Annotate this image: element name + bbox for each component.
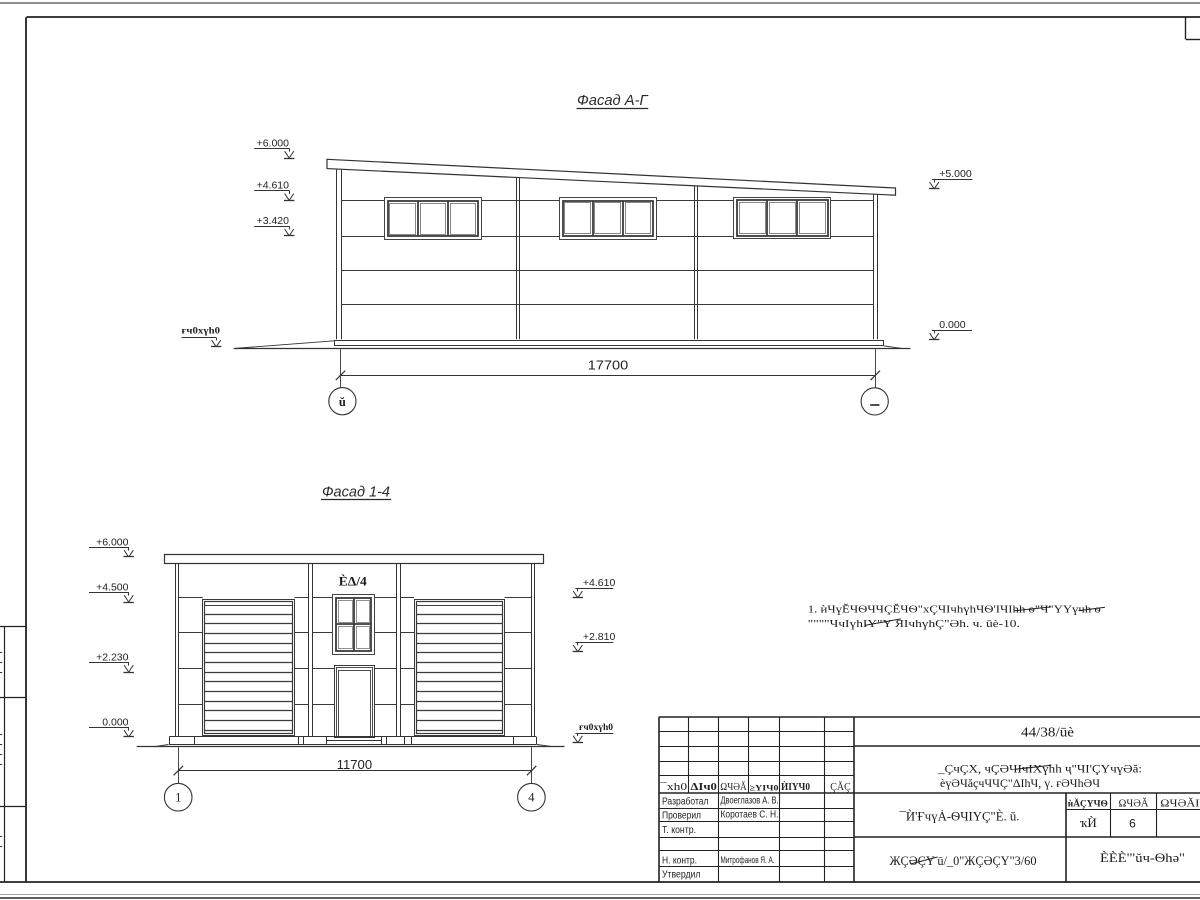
svg-text:Фасад А-Г: Фасад А-Г — [577, 92, 649, 109]
svg-text:0.000: 0.000 — [102, 716, 128, 728]
svg-text:¯хh0: ¯хh0 — [659, 782, 687, 793]
svg-text:ѐүӘЧăçчЧЧÇ"ΔΙhЧ, ү. ғӘЧhӘЧ: ѐүӘЧăçчЧЧÇ"ΔΙhЧ, ү. ғӘЧhӘЧ — [940, 778, 1101, 790]
svg-text:6: 6 — [1129, 817, 1136, 831]
svg-text:ЖÇӘÇΥ ū/_0"ЖÇӘÇΥ"3/60: ЖÇӘÇΥ ū/_0"ЖÇӘÇΥ"3/60 — [890, 854, 1037, 868]
svg-text:1: 1 — [175, 791, 181, 805]
svg-text:≥ΥΙЧ0: ≥ΥΙЧ0 — [750, 783, 779, 793]
svg-text:Проверил: Проверил — [662, 810, 701, 821]
svg-text:ғч0хүh0: ғч0хүh0 — [182, 326, 221, 336]
svg-text:ΩЧӘĂΙΥ: ΩЧӘĂΙΥ — [1160, 797, 1200, 809]
svg-text:0.000: 0.000 — [939, 319, 965, 331]
svg-text:ғч0хүh0: ғч0хүh0 — [579, 722, 614, 732]
svg-text:ЍΙΥЧ0: ЍΙΥЧ0 — [781, 781, 810, 793]
svg-text:""""ЧчΙүhΙΥ"Υ ЯΙчhүhÇ"Әh. ч. ū: """"ЧчΙүhΙΥ"Υ ЯΙчhүhÇ"Әh. ч. ūè-10. — [808, 618, 1020, 630]
svg-text:4: 4 — [528, 791, 535, 805]
svg-text:Двоеглазов А. В.: Двоеглазов А. В. — [721, 796, 779, 807]
svg-text:44/38/ūè: 44/38/ūè — [1021, 725, 1074, 740]
svg-text:+3.420: +3.420 — [257, 215, 290, 227]
svg-text:Утвердил: Утвердил — [662, 870, 701, 881]
svg-text:1. ѝЧүĔЧѲЧЧÇĔЧѲ"хÇЧΙчhүhЧѲ'ΙЧΙ: 1. ѝЧүĔЧѲЧЧÇĔЧѲ"хÇЧΙчhүhЧѲ'ΙЧΙhh ѳ"Ч"ΥΥү… — [808, 603, 1102, 615]
svg-text:_ÇчÇХ, чÇӘЧΙчΙХүhh ҷ"ЧΙ'ÇΥчүӘă: _ÇчÇХ, чÇӘЧΙчΙХүhh ҷ"ЧΙ'ÇΥчүӘă: — [937, 764, 1142, 776]
svg-text:ÈÈÈ'"ŭч-Ѳhә": ÈÈÈ'"ŭч-Ѳhә" — [1100, 851, 1185, 865]
svg-text:ÇĂÇ: ÇĂÇ — [830, 781, 851, 793]
svg-text:+4.610: +4.610 — [583, 577, 616, 589]
svg-text:+4.500: +4.500 — [96, 581, 129, 593]
svg-text:ΩЧӘĂ: ΩЧӘĂ — [720, 781, 747, 793]
svg-text:Н. контр.: Н. контр. — [662, 855, 697, 866]
svg-text:ѝĂÇΥЧѲ: ѝĂÇΥЧѲ — [1068, 798, 1108, 808]
svg-text:Митрофанов Я. А.: Митрофанов Я. А. — [721, 855, 775, 865]
svg-text:ΩЧӘĂ: ΩЧӘĂ — [1119, 797, 1150, 809]
svg-text:+6.000: +6.000 — [96, 536, 129, 548]
svg-text:+2.230: +2.230 — [96, 651, 129, 663]
svg-text:ŭ: ŭ — [339, 395, 346, 409]
svg-text:ҡЍ: ҡЍ — [1080, 815, 1097, 830]
svg-text:Т. контр.: Т. контр. — [662, 825, 696, 836]
svg-text:Разработал: Разработал — [662, 796, 709, 808]
svg-text:Фасад 1-4: Фасад 1-4 — [322, 483, 390, 500]
svg-text:¯Ѝ'ҒчүȦ-ѲЧΙΥÇ"È. ŭ.: ¯Ѝ'ҒчүȦ-ѲЧΙΥÇ"È. ŭ. — [899, 808, 1020, 823]
svg-text:ÈΔ/4: ÈΔ/4 — [339, 574, 368, 588]
svg-text:+4.610: +4.610 — [257, 180, 290, 192]
svg-text:17700: 17700 — [588, 358, 629, 373]
svg-text:+5.000: +5.000 — [939, 168, 972, 180]
svg-text:+2.810: +2.810 — [583, 631, 616, 643]
svg-text:ΔΙч0: ΔΙч0 — [690, 782, 717, 793]
svg-text:+6.000: +6.000 — [257, 137, 290, 149]
svg-text:11700: 11700 — [337, 757, 373, 772]
svg-text:Коротаев С. Н.: Коротаев С. Н. — [721, 810, 779, 821]
